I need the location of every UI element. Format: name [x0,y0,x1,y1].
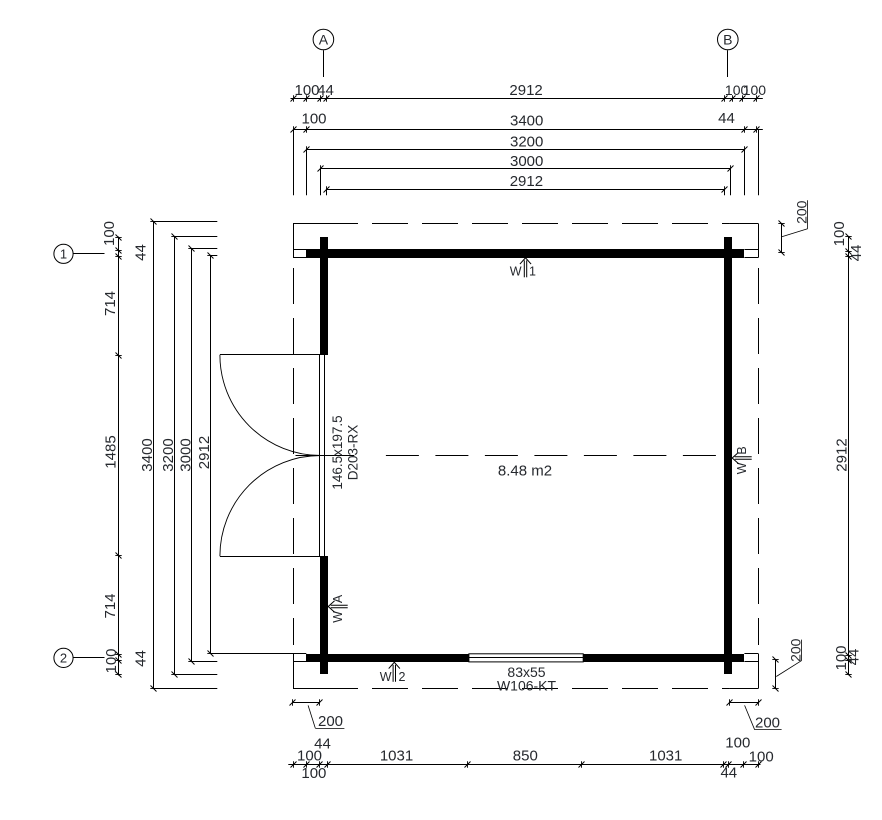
svg-text:2: 2 [399,670,406,684]
svg-text:3200: 3200 [160,438,177,471]
svg-text:A: A [331,594,345,603]
svg-text:3400: 3400 [510,113,543,130]
svg-text:44: 44 [133,650,150,667]
svg-text:44: 44 [317,82,334,99]
svg-text:100: 100 [301,765,326,782]
svg-text:D203-RX: D203-RX [345,425,360,481]
svg-text:W: W [380,670,392,684]
svg-text:100: 100 [103,648,120,673]
svg-text:100: 100 [725,735,750,752]
svg-text:1031: 1031 [649,748,682,765]
svg-text:1031: 1031 [380,748,413,765]
svg-text:44: 44 [848,245,865,262]
svg-text:714: 714 [102,291,119,316]
svg-text:B: B [723,32,732,48]
svg-text:W: W [331,611,345,623]
svg-text:3000: 3000 [510,153,543,170]
svg-text:2912: 2912 [196,436,213,469]
svg-text:1485: 1485 [103,435,120,468]
svg-text:100: 100 [749,749,774,766]
svg-text:2: 2 [60,651,67,666]
svg-text:714: 714 [102,593,119,618]
svg-text:44: 44 [314,735,331,752]
svg-text:100: 100 [833,645,850,670]
svg-text:100: 100 [101,221,118,246]
svg-text:2912: 2912 [834,438,851,471]
svg-text:200: 200 [318,713,343,730]
svg-text:100: 100 [301,110,326,127]
svg-text:44: 44 [133,244,150,261]
svg-text:44: 44 [718,110,735,127]
svg-text:8.48 m2: 8.48 m2 [498,463,552,480]
svg-text:100: 100 [294,82,319,99]
svg-text:W106-KT: W106-KT [497,677,557,693]
svg-text:2912: 2912 [510,173,543,190]
svg-text:W: W [510,264,522,278]
svg-text:100: 100 [743,82,767,98]
svg-text:100: 100 [831,221,848,246]
svg-text:1: 1 [60,247,67,262]
svg-text:3400: 3400 [139,438,156,471]
svg-text:200: 200 [788,638,804,662]
svg-text:3200: 3200 [510,133,543,150]
svg-text:3000: 3000 [178,438,195,471]
svg-text:146.5x197.5: 146.5x197.5 [330,415,345,489]
svg-text:850: 850 [513,748,538,765]
svg-text:B: B [735,446,749,454]
svg-text:200: 200 [755,715,780,732]
svg-text:1: 1 [529,264,536,278]
svg-text:200: 200 [794,200,810,224]
svg-text:2912: 2912 [509,82,542,99]
svg-text:44: 44 [720,764,737,781]
svg-text:W: W [735,462,749,474]
svg-text:A: A [319,32,329,48]
